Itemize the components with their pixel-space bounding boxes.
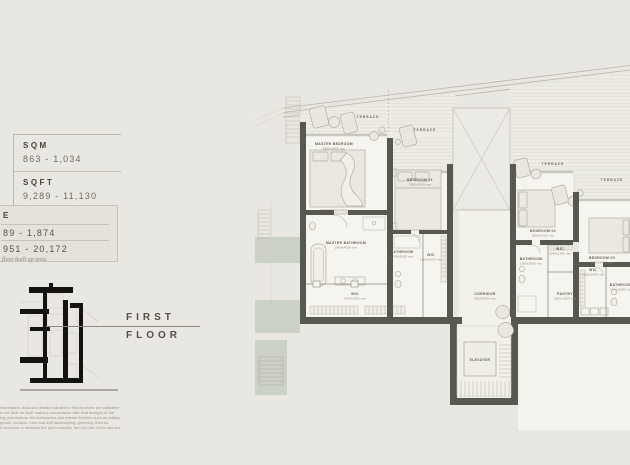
room-label-bedroom-01: BEDROOM 01	[407, 178, 433, 182]
building-section-diagram	[20, 278, 120, 396]
room-label-bedroom-02: BEDROOM 02	[530, 229, 556, 233]
first-floor-plan: TERRACE TERRACE TERRACE TERRACE MASTER B…	[255, 60, 630, 435]
room-dims-pantry: 2600x1800 mm	[554, 297, 577, 301]
room-dims-wic-02: 2040x1100 mm	[549, 252, 572, 256]
terrace-label: TERRACE	[601, 178, 624, 182]
room-dims-wic-03: 1100x2400 mm	[582, 273, 605, 277]
sqm-value: 863 - 1,034	[23, 154, 121, 164]
disclaimer-line: e brochure or between the plot boundary,…	[0, 426, 120, 431]
disclaimer-text: information, data and details included i…	[0, 406, 120, 431]
room-label-wic-02: WIC	[556, 247, 564, 251]
area-footnote: floor built up area.	[2, 257, 47, 263]
floor-leader-line	[46, 326, 200, 327]
room-dims-wic-01: 1100x3000 mm	[420, 258, 443, 262]
sqm-block: SQM 863 - 1,034	[14, 135, 121, 171]
exterior-stairs	[258, 97, 300, 238]
room-label-corridor: CORRIDOR	[474, 292, 495, 296]
room-label-pantry: PANTRY	[557, 292, 573, 296]
room-label-elevator: ELEVATOR	[470, 358, 491, 362]
total-area-sqft-fragment: 951 - 20,172	[1, 240, 109, 256]
room-dims-bathroom-03: 1700x2400 mm	[610, 288, 630, 292]
room-label-wic-01: WIC	[427, 253, 435, 257]
total-area-box: E 89 - 1,874 951 - 20,172	[0, 205, 118, 262]
terrace-label: TERRACE	[357, 115, 380, 119]
sqft-label: SQFT	[23, 178, 121, 187]
room-dims-bathroom-01: 1700x3000 mm	[391, 255, 414, 259]
room-dims-master-wic: 4200x1800 mm	[344, 297, 367, 301]
room-label-bedroom-03: BEDROOM 03	[589, 256, 615, 260]
room-dims-bedroom-01: 3300x5100 mm	[409, 183, 432, 187]
landscaping	[255, 97, 301, 395]
sqm-label: SQM	[23, 141, 121, 150]
floor-label-line2: FLOOR	[126, 330, 181, 341]
room-label-wic-03: WIC	[589, 268, 597, 272]
room-dims-master-bathroom: 2900x4000 mm	[335, 246, 358, 250]
room-label-bathroom-02: BATHROOM	[520, 257, 543, 261]
room-dims-master-bedroom: 4500x5400 mm	[323, 147, 346, 151]
sqft-value: 9,289 - 11,130	[23, 191, 121, 201]
floor-label-line1: FIRST	[126, 312, 175, 323]
room-label-master-bedroom: MASTER BEDROOM	[315, 142, 353, 146]
total-area-sqm-fragment: 89 - 1,874	[1, 224, 109, 240]
room-dims-bathroom-02: 1900x3000 mm	[520, 262, 543, 266]
void-skylight	[453, 108, 510, 210]
room-label-master-wic: WIC	[351, 292, 359, 296]
room-label-bathroom-03: BATHROOM	[610, 283, 630, 287]
sqft-block: SQFT 9,289 - 11,130	[14, 171, 121, 208]
terrace-label: TERRACE	[414, 128, 437, 132]
total-area-title-fragment: E	[1, 210, 109, 224]
room-dims-bedroom-03: 3300x4200 mm	[591, 261, 614, 265]
terrace-label: TERRACE	[542, 162, 565, 166]
room-label-master-bathroom: MASTER BATHROOM	[326, 241, 366, 245]
room-dims-bedroom-02: 3500x4700 mm	[532, 234, 555, 238]
room-dims-corridor: 3400x4900 mm	[474, 297, 497, 301]
brochure-page: SQM 863 - 1,034 SQFT 9,289 - 11,130 E 89…	[0, 0, 630, 465]
section-detail-lines	[20, 294, 100, 378]
area-stats-panel: SQM 863 - 1,034 SQFT 9,289 - 11,130	[13, 134, 121, 208]
room-label-bathroom-01: BATHROOM	[391, 250, 414, 254]
